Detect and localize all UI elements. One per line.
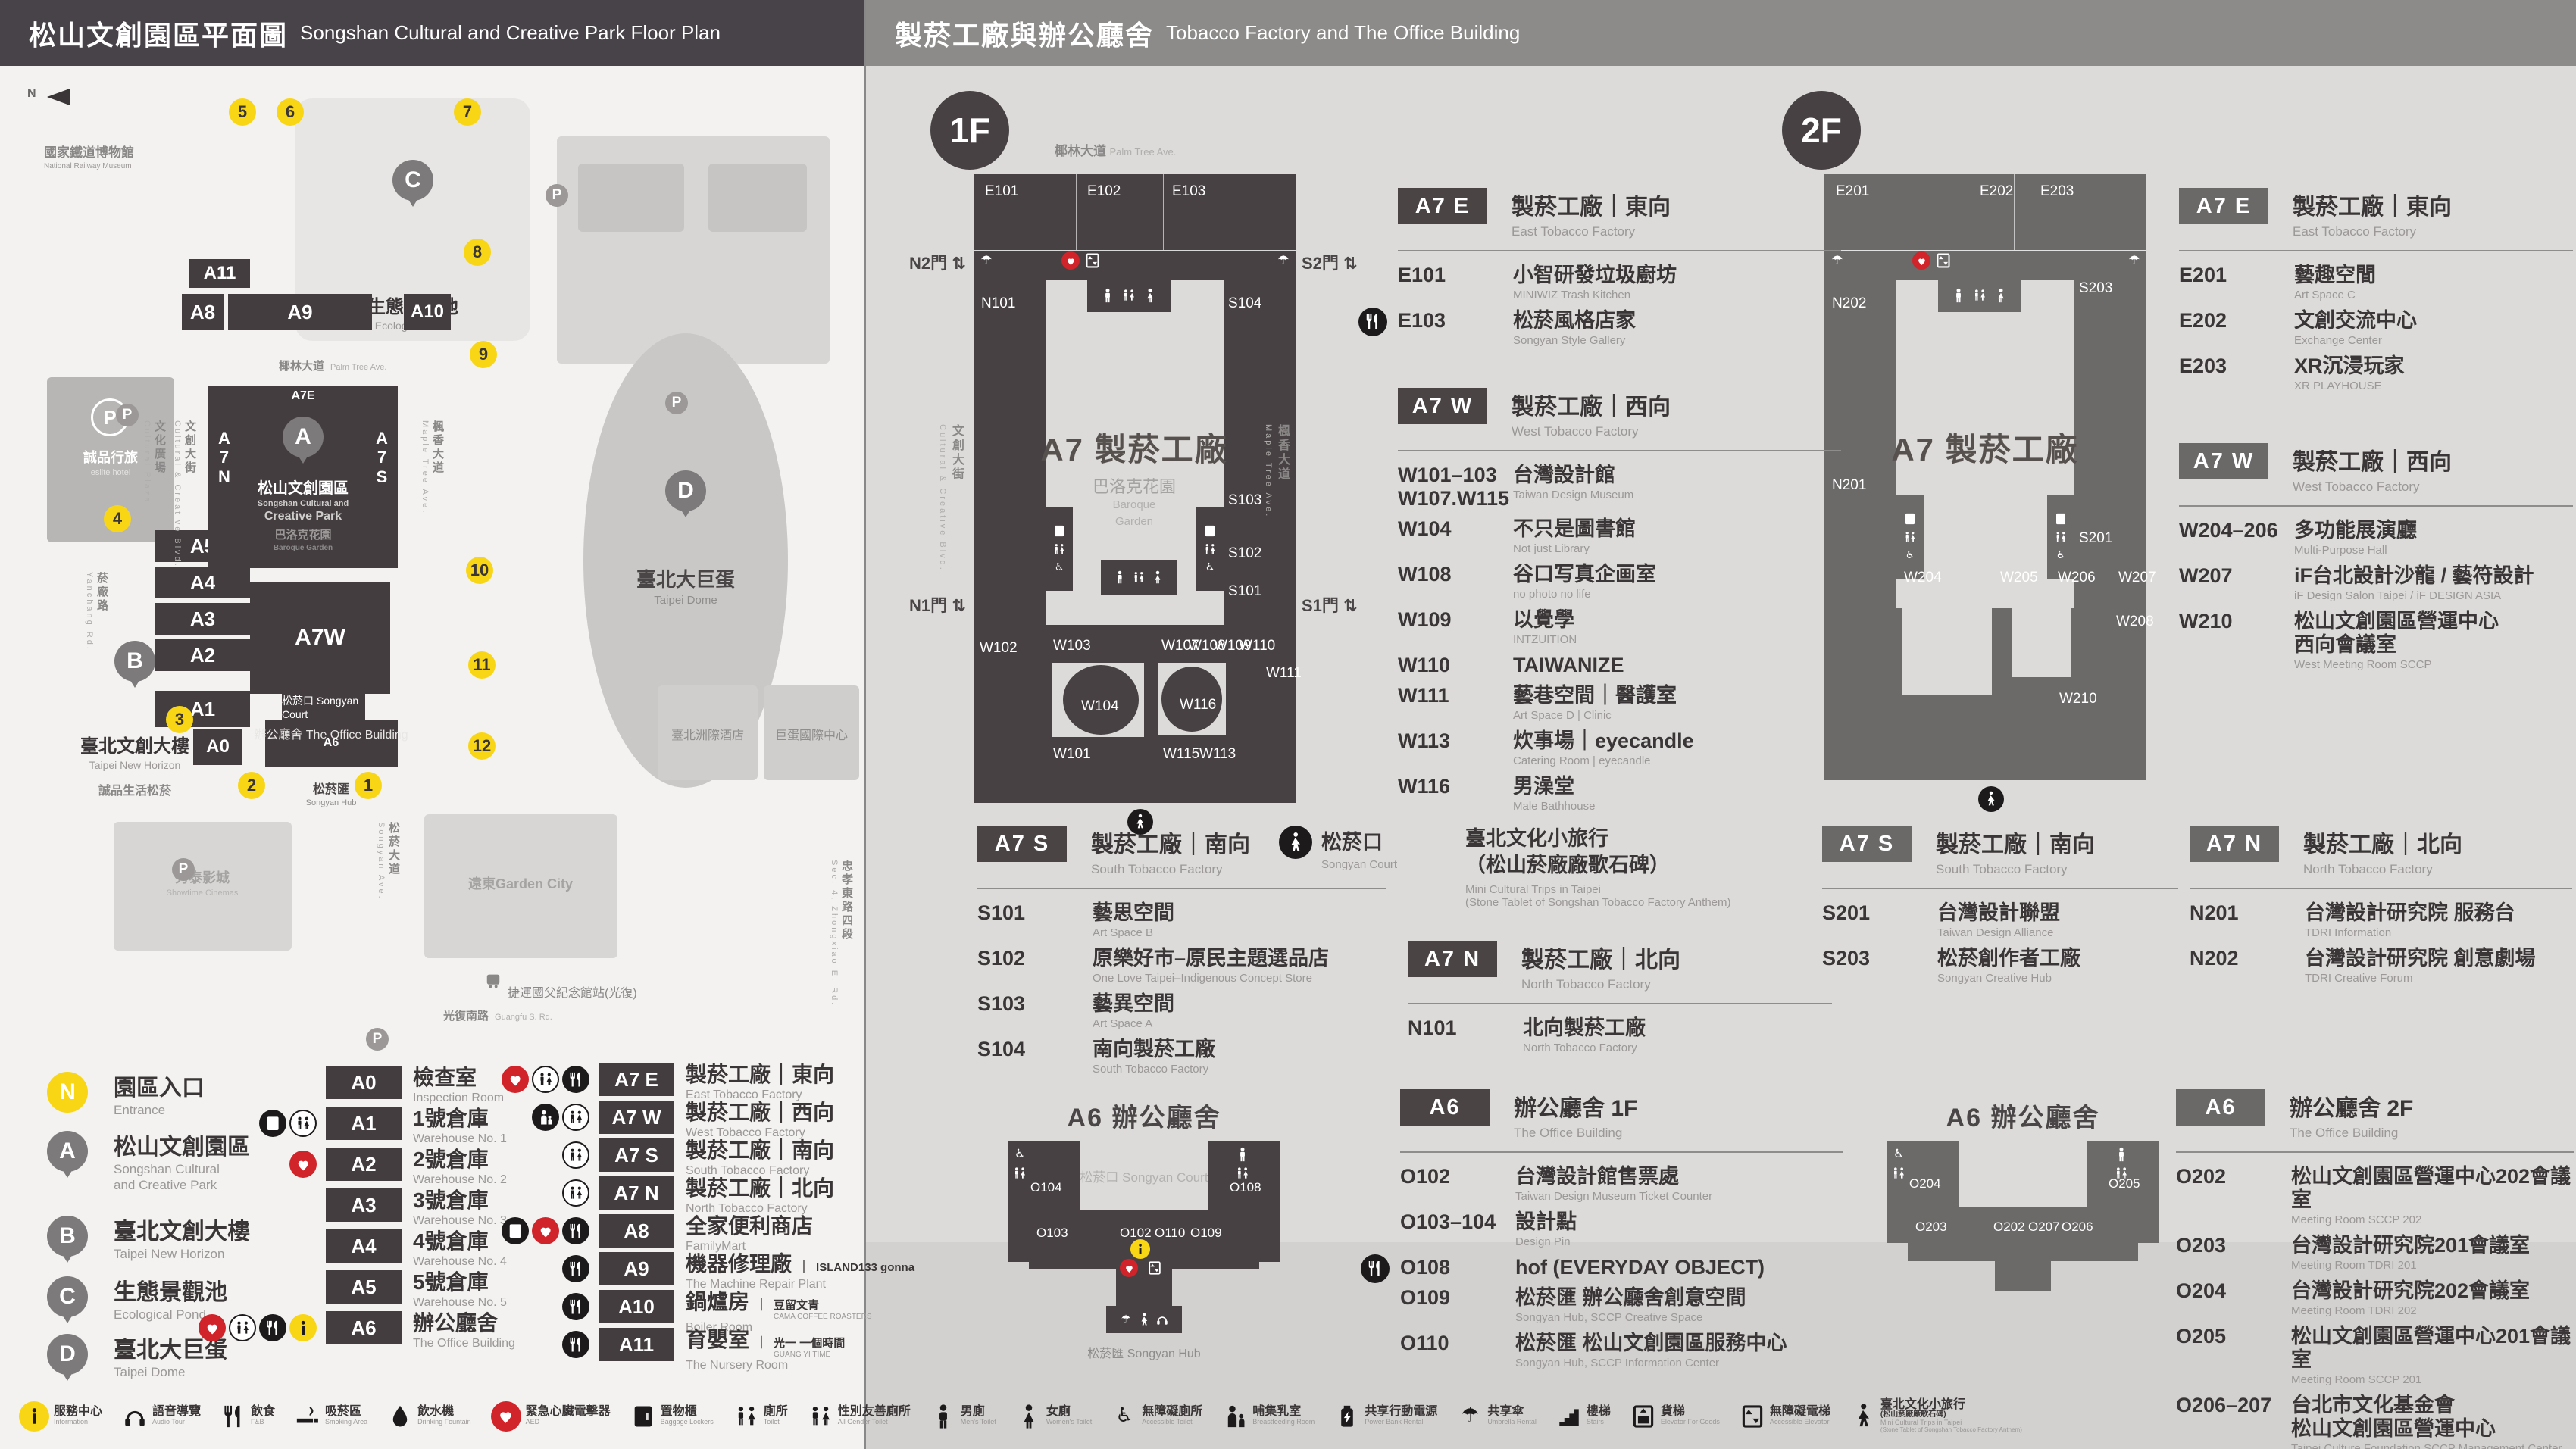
list-row-W108: W108谷口写真企画室no photo no life (1398, 563, 1841, 601)
locker-icon (630, 1404, 656, 1429)
legend-badge-A4: A4 (326, 1229, 402, 1263)
room-label-W208: W208 (2116, 614, 2154, 630)
room-label-W102: W102 (980, 640, 1018, 657)
strip-item-zh: 廁所 (764, 1406, 788, 1419)
legend-brand-en: GUANG YI TIME (774, 1351, 845, 1359)
songyan-court-map-shape: 松菸口 Songyan Court (282, 694, 365, 720)
room-name-en: Meeting Room TDRI 202 (2291, 1304, 2530, 1318)
room-id: N101 (1408, 1016, 1523, 1055)
room-label-S104: S104 (1228, 295, 1261, 312)
room-text: 北向製菸工廠North Tobacco Factory (1523, 1016, 1646, 1055)
room-text: 南向製菸工廠South Tobacco Factory (1093, 1038, 1215, 1076)
strip-item-label: 性別友善廁所All Gender Toilet (838, 1406, 911, 1426)
parking-marker: P (172, 858, 195, 881)
aed-icon (1120, 1259, 1138, 1277)
room-text: 小智研發垃圾廚坊MINIWIZ Trash Kitchen (1513, 264, 1677, 302)
legend-badge-A0: A0 (326, 1066, 402, 1099)
section-divider (1398, 250, 1841, 251)
section-title-en: The Office Building (1514, 1126, 1637, 1141)
legend-block-zh: 辦公廳舍 (413, 1307, 498, 1337)
room-text: 松菸匯 辦公廳舍創意空間Songyan Hub, SCCP Creative S… (1515, 1286, 1746, 1325)
palm-tree-ave-label: 椰林大道 Palm Tree Ave. (1055, 140, 1176, 159)
legend-block-zhline: 辦公廳舍 (413, 1307, 515, 1337)
dining-icon (562, 1255, 589, 1282)
right-title-zh: 製菸工廠與辦公廳舍 (895, 14, 1154, 53)
legend-block-zhline: 機器修理廠｜ISLAND133 gonna (686, 1248, 914, 1278)
strip-item-en: AED (526, 1419, 611, 1426)
toilet-tab (1087, 279, 1171, 312)
warehouse-block-A3: A3 (155, 603, 250, 635)
room-name-zh: 台灣設計研究院 創意劇場 (2305, 947, 2536, 970)
room-text: 台灣設計研究院 服務台TDRI Information (2305, 901, 2515, 940)
street-zh: 松菸大道 (386, 822, 402, 901)
room-label-W204: W204 (1904, 570, 1942, 586)
room-name-zh: 多功能展演廳 (2294, 519, 2417, 542)
room-id: O102 (1400, 1165, 1515, 1204)
street-en: Songyan Ave. (377, 822, 386, 901)
room-label-O203: O203 (1915, 1219, 1947, 1235)
cinema-shape: 秀泰影城Showtime Cinemas (114, 822, 292, 951)
street-zh: 菸廠路 (94, 572, 110, 651)
room-name-zh: 藝趣空間 (2294, 264, 2376, 287)
umbrella-icon: ☂ (1119, 1313, 1133, 1326)
strip-item-en: Drinking Fountain (417, 1419, 471, 1426)
section-header: A7 W製菸工廠｜西向West Tobacco Factory (2179, 443, 2573, 495)
office-building-map-shape: 辦公廳舍 The Office BuildingA6 (265, 720, 398, 767)
songyan-court-map-label: 松菸口 Songyan Court (1080, 1166, 1208, 1185)
room-label-W110: W110 (1239, 638, 1275, 654)
street-en: Guangfu S. Rd. (495, 1013, 552, 1022)
room-id: O109 (1400, 1286, 1515, 1325)
legend-badge-A3: A3 (326, 1188, 402, 1222)
mrt-station-text: 捷運國父紀念館站(光復) (508, 982, 637, 1001)
nursing-icon (532, 1104, 559, 1131)
male-icon (1951, 288, 1966, 303)
city-block-inner (578, 164, 684, 232)
room-label-O109: O109 (1190, 1226, 1222, 1241)
legend-block-text: 育嬰室｜光一 一個時間GUANG YI TIMEThe Nursery Room (686, 1323, 845, 1372)
room-name-en: Not just Library (1513, 542, 1636, 556)
room-id: W116 (1398, 775, 1513, 814)
list-row-E202: E202文創交流中心Exchange Center (2179, 309, 2573, 348)
smoking-icon (295, 1404, 320, 1429)
room-name-en: Songyan Hub, SCCP Creative Space (1515, 1311, 1746, 1325)
section-titles: 製菸工廠｜西向West Tobacco Factory (2293, 443, 2452, 495)
list-row-W207: W207iF台北設計沙龍 / 藝符設計iF Design Salon Taipe… (2179, 564, 2573, 603)
strip-item-label: 飲水機Drinking Fountain (417, 1406, 471, 1426)
room-id: W113 (1398, 729, 1513, 768)
strip-item-en: All Gender Toilet (838, 1419, 911, 1426)
room-text: 設計點Design Pin (1515, 1210, 1577, 1249)
elevator-icon (1147, 1260, 1162, 1276)
room-name-zh: 設計點 (1515, 1210, 1577, 1234)
office-building-1f-map: ☂♿松菸口 Songyan Court松菸匯 Songyan HubO104O1… (1008, 1135, 1280, 1354)
list-row-E201: E201藝趣空間Art Space C (2179, 264, 2573, 302)
strip-item-en: Baggage Lockers (661, 1419, 714, 1426)
toilet-icon (1972, 288, 1987, 303)
label-zh: 誠品行旅 (83, 447, 138, 467)
list-row-W101–103: W101–103W107.W115台灣設計館Taiwan Design Muse… (1398, 464, 1841, 511)
section-a7e2: A7 E製菸工廠｜東向East Tobacco FactoryE201藝趣空間A… (2179, 188, 2573, 400)
umbrella-icon: ☂ (978, 253, 995, 270)
section-divider (1400, 1151, 1843, 1153)
legend-pin-D: D (47, 1334, 88, 1375)
section-title-zh: 製菸工廠｜南向 (1936, 826, 2095, 859)
right-tab: ♿ (1196, 507, 1224, 591)
strip-item-label: 無障礙廁所Accessible Toilet (1142, 1406, 1202, 1426)
strip-item-zh: 吸菸區 (325, 1406, 367, 1419)
section-title-zh: 製菸工廠｜北向 (2303, 826, 2462, 859)
baroque-garden-zh: 巴洛克花園 (1093, 473, 1176, 498)
strip-item-en: Accessible Elevator (1770, 1419, 1830, 1426)
legend-badge-A2: A2 (326, 1148, 402, 1181)
section-a62: A6辦公廳舍 2FThe Office BuildingO202松山文創園區營運… (2176, 1089, 2574, 1449)
section-header: A7 W製菸工廠｜西向West Tobacco Factory (1398, 388, 1841, 439)
entrance-7: 7 (454, 98, 481, 126)
room-id: W207 (2179, 564, 2294, 603)
strip-item-zh: 語音導覽 (152, 1406, 201, 1419)
room-name-en: Songyan Creative Hub (1937, 972, 2080, 985)
legend-brand-sep: ｜ (755, 1332, 767, 1351)
legend-block-text: 4號倉庫Warehouse No. 4 (413, 1225, 507, 1269)
section-a7n2: A7 N製菸工廠｜北向North Tobacco FactoryN201台灣設計… (2190, 826, 2572, 992)
wall-line (1076, 174, 1077, 250)
office-building-2f-map: ♿O204O205O203O202O207O206 (1887, 1135, 2159, 1313)
strip-item-label: 臺北文化小旅行(松山菸廠廠歌石碑)Mini Cultural Trips in … (1880, 1399, 2022, 1434)
room-text: 谷口写真企画室no photo no life (1513, 563, 1656, 601)
room-text: 文創交流中心Exchange Center (2294, 309, 2417, 348)
legend-block-zh: 全家便利商店 (686, 1210, 813, 1240)
room-text: hof (EVERYDAY OBJECT) (1515, 1256, 1765, 1279)
desc-en1: Mini Cultural Trips in Taipei (1465, 883, 1731, 896)
room-id: O203 (2176, 1234, 2291, 1273)
left-wing (974, 250, 1046, 803)
aed-icon (532, 1217, 559, 1244)
songyan-court-desc: 臺北文化小旅行（松山菸廠廠歌石碑）Mini Cultural Trips in … (1465, 826, 1731, 909)
section-header: A6辦公廳舍 1FThe Office Building (1400, 1089, 1843, 1141)
strip-item: 性別友善廁所All Gender Toilet (808, 1404, 911, 1429)
room-name-en: Multi-Purpose Hall (2294, 544, 2417, 557)
list-row-W109: W109以覺學INTZUITION (1398, 608, 1841, 647)
room-name-en: iF Design Salon Taipei / iF DESIGN ASIA (2294, 589, 2534, 603)
legend-block-text: 2號倉庫Warehouse No. 2 (413, 1143, 507, 1187)
street-en: Maple Tree Ave. (420, 420, 430, 514)
nursing-icon (1222, 1404, 1248, 1429)
section-a7e1: A7 E製菸工廠｜東向East Tobacco FactoryE101小智研發垃… (1398, 188, 1841, 354)
aed-icon (491, 1401, 521, 1432)
section-titles: 辦公廳舍 2FThe Office Building (2290, 1089, 2413, 1141)
section-titles: 製菸工廠｜南向South Tobacco Factory (1091, 826, 1250, 877)
room-name-en: Taipei Culture Foundation SCCP Managemen… (2291, 1442, 2562, 1449)
entrance-9: 9 (470, 341, 497, 368)
legend-block-zhline: 製菸工廠｜東向 (686, 1058, 834, 1088)
list-row-E101: E101小智研發垃圾廚坊MINIWIZ Trash Kitchen (1398, 264, 1841, 302)
entrance-8: 8 (464, 239, 491, 266)
dining-icon (220, 1404, 246, 1429)
legend-badge-A9: A9 (599, 1252, 674, 1285)
legend-brand: 豆留文青CAMA COFFEE ROASTERS (774, 1297, 871, 1321)
legend-block-zhline: 2號倉庫 (413, 1143, 507, 1173)
wheelchair-icon: ♿ (1203, 561, 1217, 574)
room-name-en: Art Space C (2294, 289, 2376, 302)
street-label: 忠孝東路四段Sec. 4, Zhongxiao E. Rd. (830, 860, 855, 1007)
room-name-en: One Love Taipei–Indigenous Concept Store (1093, 972, 1329, 985)
a6-right-arm-icons (1235, 1147, 1250, 1181)
a7-complex-shape: A7EA7NA7SA松山文創園區Songshan Cultural andCre… (208, 386, 398, 568)
legend-marker-text: 松山文創園區Songshan Culturaland Creative Park (114, 1128, 250, 1194)
list-row-W104: W104不只是圖書館Not just Library (1398, 517, 1841, 556)
room-name-en: South Tobacco Factory (1093, 1063, 1215, 1076)
room-name-en: Exchange Center (2294, 334, 2417, 348)
strip-item: 男廁Men's Toilet (930, 1404, 996, 1429)
room-name-en: TDRI Creative Forum (2305, 972, 2536, 985)
legend-pin-B: B (47, 1216, 88, 1257)
room-label-S203: S203 (2079, 280, 2112, 297)
legend-block-en: The Nursery Room (686, 1359, 845, 1372)
room-id: N201 (2190, 901, 2305, 940)
north-arrow-icon (47, 89, 70, 105)
room-name-en: Songyan Hub, SCCP Information Center (1515, 1357, 1787, 1370)
wall-line (974, 250, 1296, 251)
room-label-W101: W101 (1053, 746, 1091, 763)
toilet-icon (1235, 1166, 1250, 1181)
room-name-zh: 松山文創園區營運中心201會議室 (2291, 1325, 2574, 1372)
room-name-en: Meeting Room TDRI 201 (2291, 1259, 2530, 1273)
strip-item: 無障礙電梯Accessible Elevator (1740, 1404, 1830, 1429)
legend-brand: ISLAND133 gonna (816, 1261, 914, 1274)
list-row-N202: N202台灣設計研究院 創意劇場TDRI Creative Forum (2190, 947, 2572, 985)
toilet-icon (289, 1110, 317, 1137)
section-divider (2179, 505, 2573, 507)
walk-icon (1978, 786, 2004, 812)
section-titles: 製菸工廠｜南向South Tobacco Factory (1936, 826, 2095, 877)
dining-icon (562, 1066, 589, 1093)
section-title-zh: 製菸工廠｜東向 (1512, 188, 1671, 221)
room-id: E101 (1398, 264, 1513, 302)
room-name-en: Taiwan Design Museum Ticket Counter (1515, 1190, 1712, 1204)
floor1-badge: 1F (930, 91, 1009, 170)
legend-marker-en: Taipei Dome (114, 1364, 227, 1380)
street-label: 楓香大道Maple Tree Ave. (420, 420, 445, 514)
s2-door-label: S2門 ⇅ (1302, 250, 1357, 274)
room-id: W109 (1398, 608, 1513, 647)
legend-block-zh: 鍋爐房 (686, 1285, 749, 1316)
legend-block-zhline: 製菸工廠｜北向 (686, 1172, 834, 1202)
toilet-icon (1012, 1166, 1027, 1181)
room-name-zh: XR沉浸玩家 (2294, 354, 2405, 378)
room-text: 藝異空間Art Space A (1093, 992, 1174, 1031)
a6-stem (1995, 1261, 2051, 1291)
legend-brand-sep: ｜ (798, 1257, 810, 1275)
strip-item-label: 廁所Toilet (764, 1406, 788, 1426)
list-row-W111: W111藝巷空間｜醫護室Art Space D | Clinic (1398, 684, 1841, 723)
room-name-zh: 以覺學 (1513, 608, 1577, 632)
street-label: 文創大街Cultural & Creative Blvd. (173, 420, 198, 568)
dining-icon (259, 1314, 286, 1341)
room-name-zh: 谷口写真企画室 (1513, 563, 1656, 586)
strip-item-en: Accessible Toilet (1142, 1419, 1202, 1426)
a6-map-label: A6 (324, 736, 339, 750)
entrance-1: 1 (355, 772, 382, 799)
strip-item-label: 共享行動電源Power Bank Rental (1365, 1406, 1437, 1426)
list-row-N101: N101北向製菸工廠North Tobacco Factory (1408, 1016, 1832, 1055)
warehouse-block-A11: A11 (189, 259, 250, 288)
legend-block-text: 辦公廳舍The Office Building (413, 1307, 515, 1351)
legend-entrance-marker: N (47, 1072, 88, 1113)
section-title-en: South Tobacco Factory (1936, 862, 2095, 877)
map-pin-C: C (392, 160, 433, 201)
wheelchair-icon: ♿ (1012, 1147, 1027, 1162)
warehouse-block-A2: A2 (155, 639, 250, 671)
strip-item-zh: 哺集乳室 (1252, 1406, 1315, 1419)
room-label-W206: W206 (2058, 570, 2096, 586)
section-title-zh: 製菸工廠｜東向 (2293, 188, 2452, 221)
room-text: 多功能展演廳Multi-Purpose Hall (2294, 519, 2417, 557)
cultural-creative-blvd-label: 文創大街Cultural & Creative Blvd. (938, 424, 965, 572)
strip-item-zh: 性別友善廁所 (838, 1406, 911, 1419)
section-titles: 製菸工廠｜北向North Tobacco Factory (1521, 941, 1680, 992)
strip-item-zh: 臺北文化小旅行 (1880, 1399, 2022, 1412)
list-row-E203: E203XR沉浸玩家XR PLAYHOUSE (2179, 354, 2573, 393)
room-name-en: Male Bathhouse (1513, 800, 1595, 814)
male-icon (1100, 288, 1115, 303)
left-tab: ♿ (1046, 507, 1073, 591)
room-id: E201 (2179, 264, 2294, 302)
section-title-en: North Tobacco Factory (1521, 977, 1680, 992)
strip-item-label: 樓梯Stairs (1587, 1406, 1611, 1426)
legend-block-zh: 1號倉庫 (413, 1102, 489, 1132)
strip-item-en: Breastfeeding Room (1252, 1419, 1315, 1426)
legend-marker-en: and Creative Park (114, 1177, 250, 1193)
room-id: O202 (2176, 1165, 2291, 1227)
freight-icon (1630, 1404, 1656, 1429)
section-title-zh: 製菸工廠｜西向 (2293, 443, 2452, 476)
toilet-icon (1132, 570, 1146, 584)
strip-item-zh: 飲水機 (417, 1406, 471, 1419)
songyan-hub-map-label: 松菸匯 Songyan Hub (1087, 1343, 1200, 1361)
strip-item-zh: 無障礙電梯 (1770, 1406, 1830, 1419)
a7e-map-label: A7E (291, 389, 314, 403)
legend-badge-A1: A1 (326, 1107, 402, 1140)
strip-item-en: Audio Tour (152, 1419, 201, 1426)
room-text: 松山文創園區營運中心202會議室Meeting Room SCCP 202 (2291, 1165, 2574, 1227)
strip-item: ☂共享傘Umbrella Rental (1457, 1404, 1537, 1429)
room-text: 松山文創園區營運中心201會議室Meeting Room SCCP 201 (2291, 1325, 2574, 1387)
room-label-O202: O202 (1993, 1219, 2025, 1235)
strip-item: ♿無障礙廁所Accessible Toilet (1111, 1404, 1202, 1429)
parking-marker: P (116, 404, 139, 426)
list-row-O110: O110松菸匯 松山文創園區服務中心Songyan Hub, SCCP Info… (1400, 1332, 1843, 1370)
room-name-zh: 松菸匯 辦公廳舍創意空間 (1515, 1286, 1746, 1310)
strip-item-label: 語音導覽Audio Tour (152, 1406, 201, 1426)
room-name-zh: 藝異空間 (1093, 992, 1174, 1016)
eslite-hotel-label: 誠品行旅eslite hotel (83, 447, 138, 477)
entrance-4: 4 (104, 505, 131, 532)
legend-block-zh: 5號倉庫 (413, 1266, 489, 1296)
street-zh: 楓香大道 (430, 420, 445, 514)
list-row-O202: O202松山文創園區營運中心202會議室Meeting Room SCCP 20… (2176, 1165, 2574, 1227)
room-name-zh: 炊事場｜eyecandle (1513, 729, 1694, 753)
legend-marker-text: 園區入口Entrance (114, 1069, 205, 1118)
aed-icon (199, 1314, 226, 1341)
strip-item-label: 吸菸區Smoking Area (325, 1406, 367, 1426)
strip-item-label: 哺集乳室Breastfeeding Room (1252, 1406, 1315, 1426)
songyan-court-feature: 松菸口Songyan Court臺北文化小旅行（松山菸廠廠歌石碑）Mini Cu… (1279, 826, 1843, 909)
male-icon (930, 1404, 956, 1429)
room-label-O205: O205 (2109, 1176, 2140, 1191)
strip-item: 廁所Toilet (733, 1404, 788, 1429)
section-a7s2: A7 S製菸工廠｜南向South Tobacco FactoryS201台灣設計… (1822, 826, 2178, 992)
legend-block-zh: 3號倉庫 (413, 1184, 489, 1214)
taipei-new-horizon-label: 臺北文創大樓Taipei New Horizon (80, 731, 189, 771)
room-text: 以覺學INTZUITION (1513, 608, 1577, 647)
strip-item-en2: (Stone Tablet of Songshan Tobacco Factor… (1880, 1427, 2022, 1434)
legend-block-zhline: 5號倉庫 (413, 1266, 507, 1296)
dome-center-shape: 巨蛋國際中心 (764, 685, 859, 780)
taipei-dome-label: 臺北大巨蛋Taipei Dome (636, 564, 735, 607)
section-title-zh: 製菸工廠｜南向 (1091, 826, 1250, 859)
strip-item-label: 貨梯Elevator For Goods (1661, 1406, 1720, 1426)
room-text: 藝思空間Art Space B (1093, 901, 1174, 940)
room-text: 炊事場｜eyecandleCatering Room | eyecandle (1513, 729, 1694, 768)
room-name-zh: 南向製菸工廠 (1093, 1038, 1215, 1061)
songyan-court-zh: 松菸口 (1321, 826, 1465, 855)
legend-badge-A7N: A7 N (599, 1176, 674, 1210)
label-zh: 臺北大巨蛋 (636, 564, 735, 592)
wheelchair-icon: ♿ (2054, 548, 2068, 562)
room-id: O108 (1400, 1256, 1515, 1279)
umbrella-icon: ☂ (1457, 1404, 1483, 1429)
street-label: 松菸大道Songyan Ave. (377, 822, 402, 901)
legend-block-zhline: 4號倉庫 (413, 1225, 507, 1255)
city-block-inner (708, 164, 807, 232)
strip-item: 貨梯Elevator For Goods (1630, 1404, 1720, 1429)
toilet-icon (1203, 542, 1217, 556)
room-label-O104: O104 (1030, 1180, 1062, 1195)
room-label-W207: W207 (2118, 570, 2156, 586)
locker-icon (2054, 512, 2068, 526)
legend-brand-sep: ｜ (755, 1294, 767, 1313)
section-titles: 辦公廳舍 1FThe Office Building (1514, 1089, 1637, 1141)
room-text: iF台北設計沙龍 / 藝符設計iF Design Salon Taipei / … (2294, 564, 2534, 603)
legend-marker-zh: 臺北文創大樓 (114, 1213, 250, 1246)
elevator-icon (1740, 1404, 1765, 1429)
section-titles: 製菸工廠｜西向West Tobacco Factory (1512, 388, 1671, 439)
strip-item-en: Smoking Area (325, 1419, 367, 1426)
strip-item: 哺集乳室Breastfeeding Room (1222, 1404, 1315, 1429)
room-label-W210: W210 (2059, 691, 2097, 707)
person-icon (1235, 1147, 1250, 1162)
toilet-icon (808, 1404, 833, 1429)
entrance-10: 10 (466, 557, 493, 584)
strip-item-zh: 男廁 (961, 1406, 996, 1419)
room-label-E103: E103 (1172, 183, 1205, 200)
legend-pin-C: C (47, 1276, 88, 1317)
legend-badge-A7S: A7 S (599, 1138, 674, 1172)
room-id: S104 (977, 1038, 1093, 1076)
warehouse-block-A0: A0 (193, 729, 242, 765)
label-en: Showtime Cinemas (167, 888, 239, 898)
room-id: E103 (1398, 309, 1513, 348)
a6-left-arm-icons: ♿ (1012, 1147, 1027, 1181)
section-title-en: East Tobacco Factory (2293, 224, 2452, 239)
strip-item: 吸菸區Smoking Area (295, 1404, 367, 1429)
room-label-S101: S101 (1228, 583, 1261, 600)
label-en: Taipei Dome (636, 594, 735, 607)
section-badge: A7 E (1398, 188, 1487, 224)
strip-item: 服務中心Information (19, 1401, 102, 1432)
aed-icon (1912, 251, 1930, 270)
